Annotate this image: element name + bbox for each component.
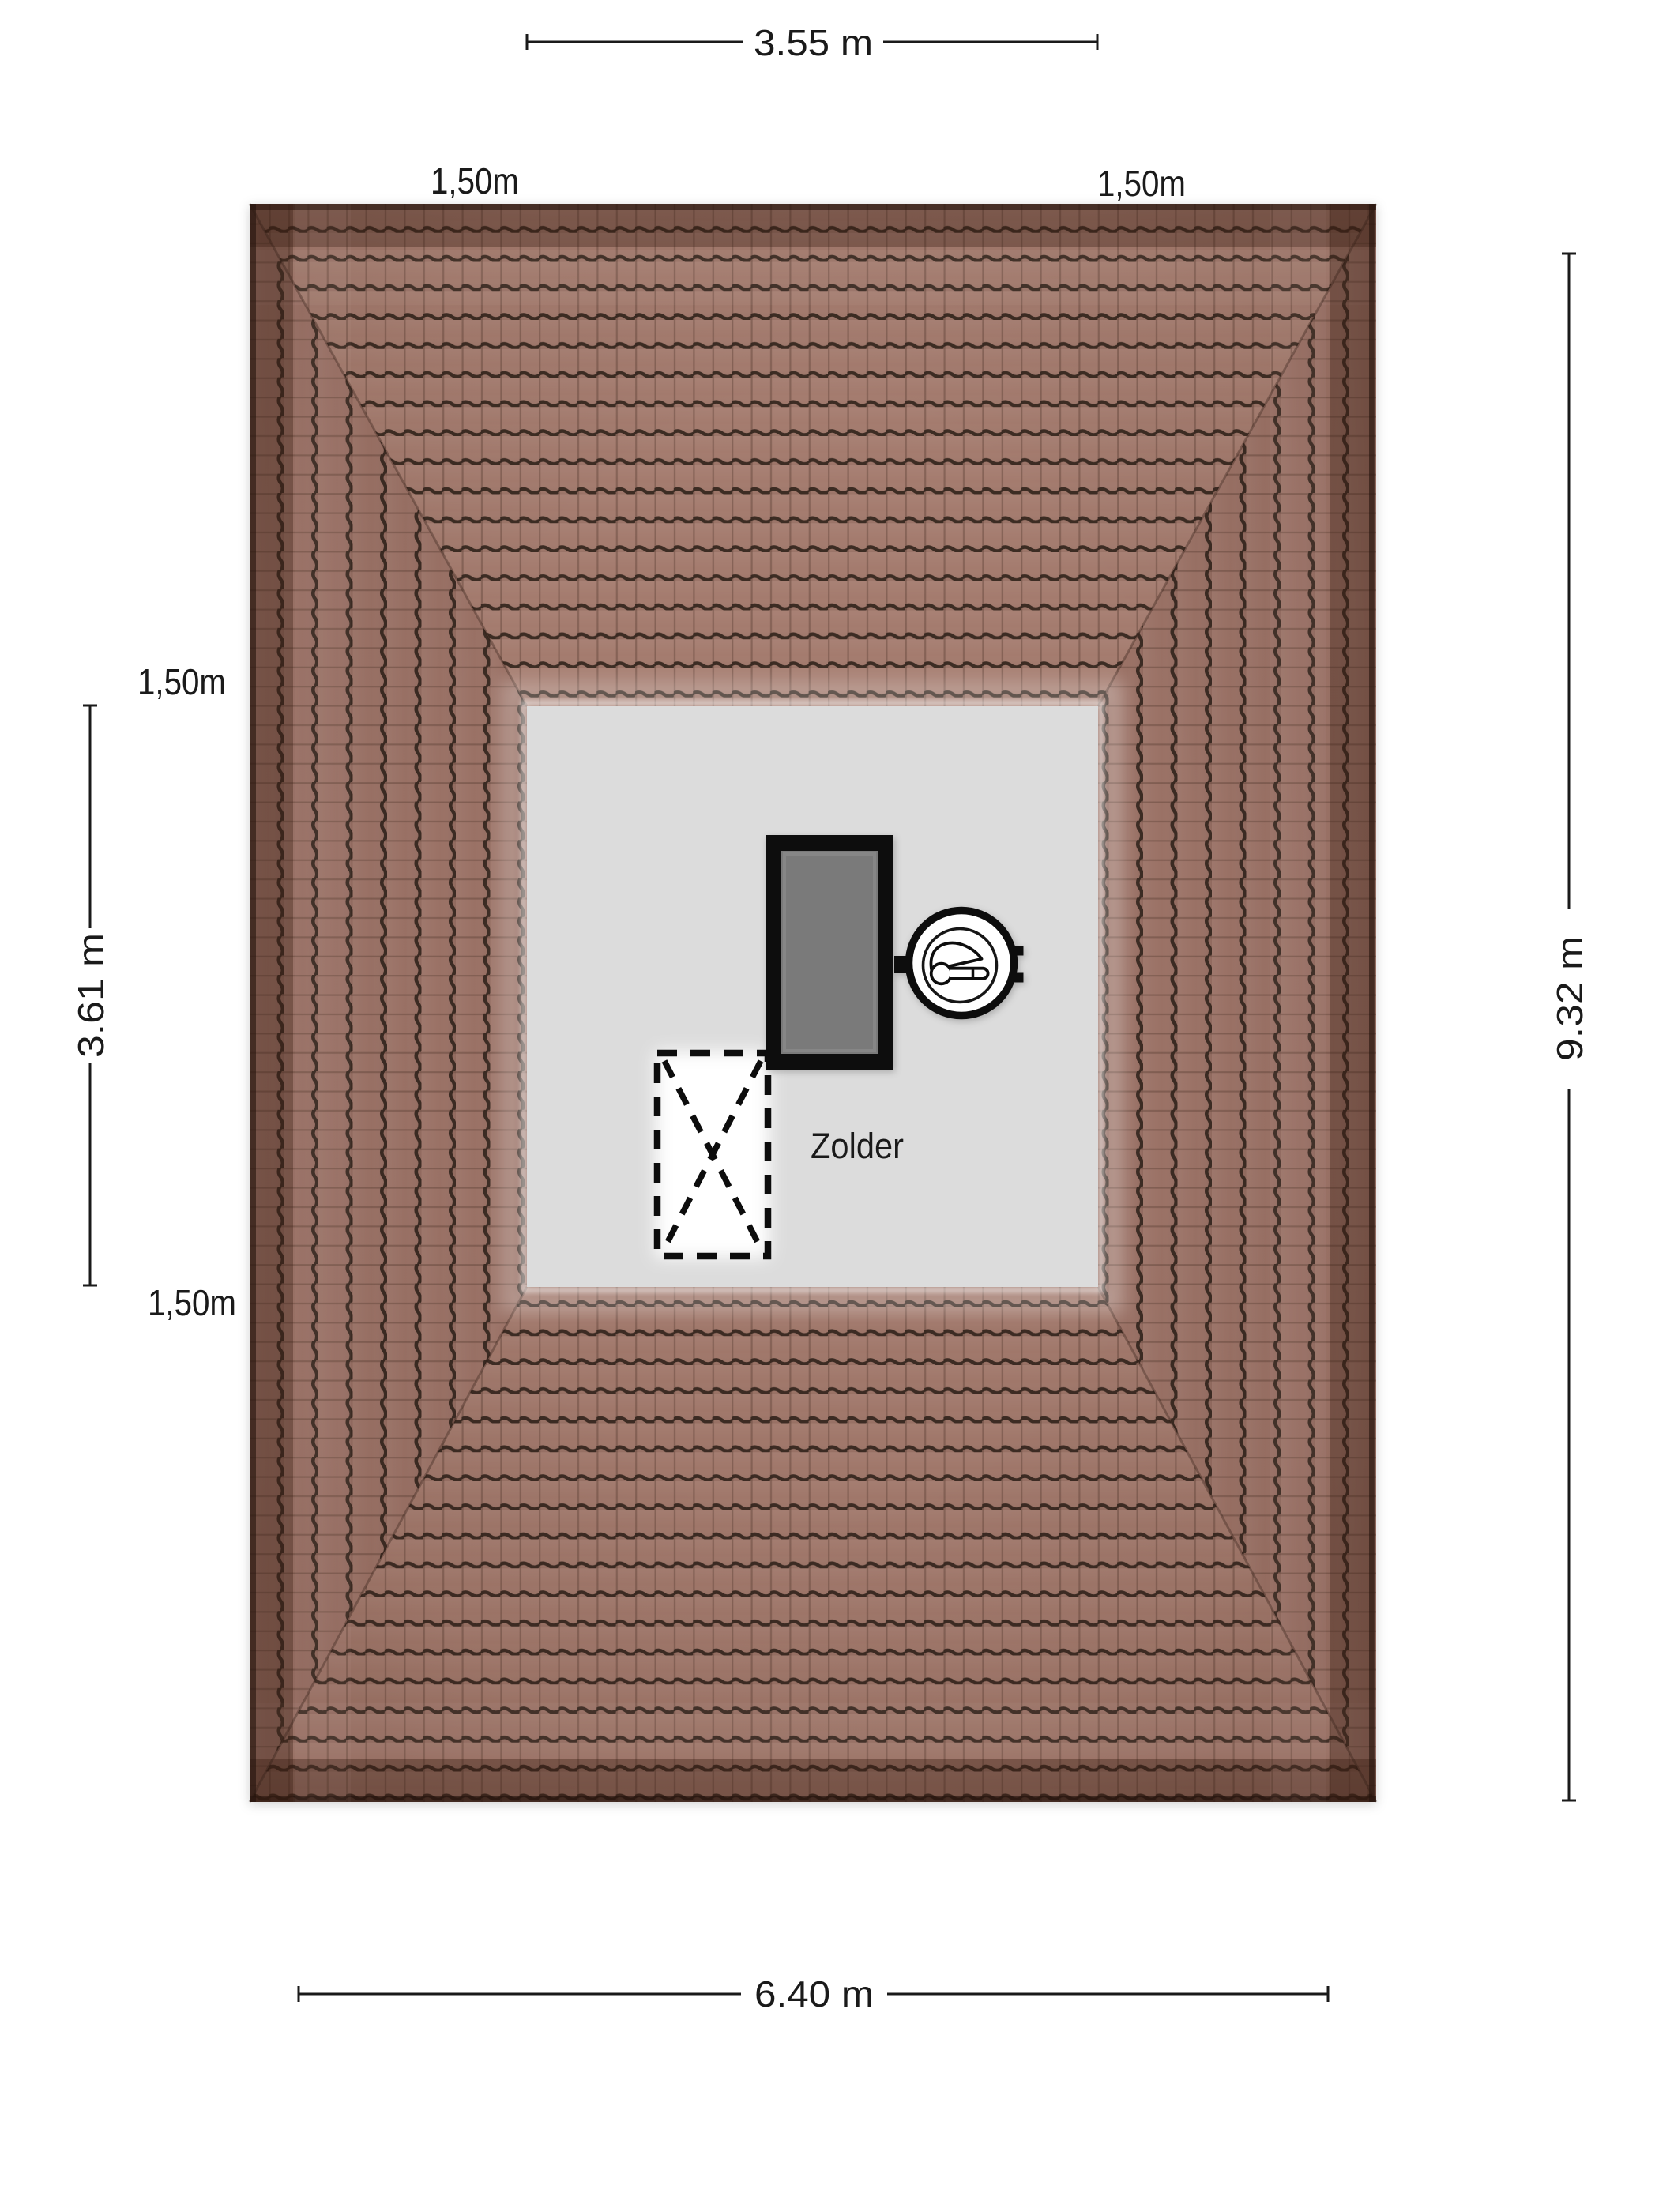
svg-text:3.61 m: 3.61 m [70, 933, 111, 1058]
svg-text:1,50m: 1,50m [137, 661, 226, 702]
svg-text:1,50m: 1,50m [1097, 163, 1186, 204]
svg-text:1,50m: 1,50m [148, 1282, 236, 1323]
svg-text:3.55 m: 3.55 m [754, 22, 873, 63]
svg-text:Zolder: Zolder [811, 1126, 904, 1166]
svg-text:1,50m: 1,50m [431, 160, 519, 201]
svg-text:9.32 m: 9.32 m [1549, 936, 1590, 1061]
svg-text:6.40 m: 6.40 m [754, 1973, 874, 2014]
